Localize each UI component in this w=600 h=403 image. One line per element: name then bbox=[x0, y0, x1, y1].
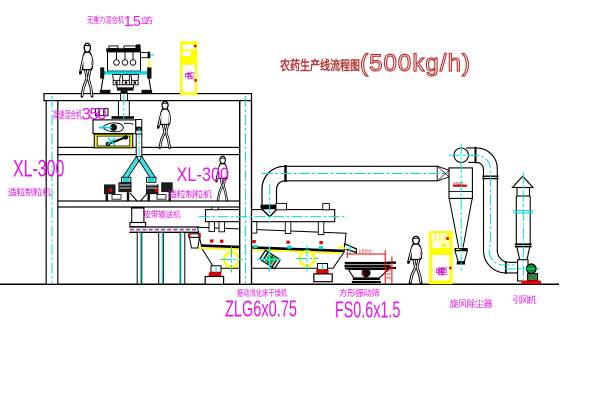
svg-text:方形振动筛: 方形振动筛 bbox=[339, 287, 380, 298]
svg-text:FS0.6x1.5: FS0.6x1.5 bbox=[335, 298, 400, 323]
svg-text:FN30: FN30 bbox=[454, 180, 465, 185]
svg-text:农药生产线流程图: 农药生产线流程图 bbox=[279, 58, 360, 74]
svg-text:旋风除尘器: 旋风除尘器 bbox=[450, 298, 493, 309]
svg-text:立方: 立方 bbox=[140, 15, 154, 26]
svg-text:电控柜: 电控柜 bbox=[435, 267, 448, 277]
svg-text:无重力混合机: 无重力混合机 bbox=[87, 14, 124, 25]
svg-text:皮带输送机: 皮带输送机 bbox=[144, 209, 181, 220]
svg-text:引风机: 引风机 bbox=[513, 294, 537, 305]
svg-text:345: 345 bbox=[386, 269, 392, 280]
svg-text:1500: 1500 bbox=[359, 249, 372, 255]
svg-text:XL-300: XL-300 bbox=[177, 164, 230, 185]
svg-text:ZLG6x0.75: ZLG6x0.75 bbox=[225, 297, 297, 322]
svg-text:XL-300: XL-300 bbox=[13, 157, 64, 183]
svg-text:350: 350 bbox=[82, 105, 107, 124]
svg-text:造粒制粒机: 造粒制粒机 bbox=[168, 189, 212, 200]
svg-text:(500kg/h): (500kg/h) bbox=[360, 50, 470, 77]
svg-text:电控: 电控 bbox=[184, 71, 195, 81]
svg-text:高速混合机: 高速混合机 bbox=[53, 109, 82, 121]
svg-text:造粒制粒机: 造粒制粒机 bbox=[8, 187, 51, 198]
